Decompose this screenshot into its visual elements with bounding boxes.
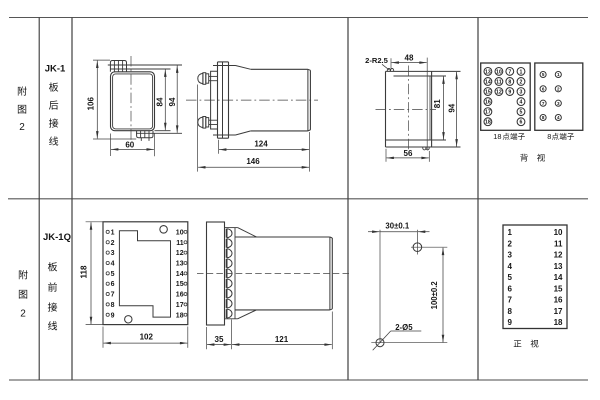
svg-text:2: 2: [19, 122, 25, 133]
svg-text:4: 4: [508, 262, 513, 271]
svg-text:12: 12: [176, 250, 184, 257]
svg-text:8: 8: [111, 302, 115, 309]
svg-text:1: 1: [520, 69, 523, 75]
svg-text:2: 2: [508, 239, 513, 248]
svg-text:JK-1Q: JK-1Q: [43, 232, 71, 243]
svg-text:94: 94: [448, 103, 457, 112]
svg-text:13: 13: [176, 260, 184, 267]
svg-text:5: 5: [542, 72, 545, 77]
svg-text:4: 4: [520, 99, 523, 105]
svg-text:94: 94: [168, 97, 177, 106]
svg-text:3: 3: [508, 251, 513, 260]
svg-text:15: 15: [554, 284, 563, 293]
svg-text:1: 1: [111, 229, 115, 236]
svg-text:10: 10: [176, 229, 184, 236]
svg-text:9: 9: [111, 312, 115, 319]
svg-text:35: 35: [215, 335, 224, 344]
svg-text:8: 8: [547, 132, 551, 141]
svg-text:30±0.1: 30±0.1: [385, 221, 409, 230]
svg-text:7: 7: [508, 69, 511, 75]
svg-text:5: 5: [520, 110, 523, 116]
svg-text:7: 7: [542, 101, 545, 106]
svg-text:3: 3: [111, 250, 115, 257]
svg-text:4: 4: [111, 260, 115, 267]
svg-text:8: 8: [542, 115, 545, 120]
svg-text:48: 48: [405, 53, 414, 62]
svg-text:18: 18: [485, 120, 491, 126]
svg-text:100±0.2: 100±0.2: [430, 281, 439, 310]
svg-text:118: 118: [80, 265, 89, 278]
svg-text:124: 124: [254, 139, 268, 148]
svg-text:2: 2: [557, 87, 560, 92]
svg-text:17: 17: [485, 110, 491, 116]
svg-text:60: 60: [125, 140, 134, 149]
svg-text:5: 5: [111, 271, 115, 278]
svg-text:6: 6: [542, 87, 545, 92]
svg-text:13: 13: [485, 69, 491, 75]
svg-text:121: 121: [275, 335, 289, 344]
svg-text:8: 8: [508, 307, 513, 316]
svg-text:9: 9: [508, 89, 511, 95]
svg-text:11: 11: [496, 79, 502, 85]
svg-text:4: 4: [557, 115, 560, 120]
svg-text:1: 1: [508, 228, 513, 237]
svg-text:106: 106: [86, 96, 95, 110]
svg-text:7: 7: [508, 296, 513, 305]
svg-text:6: 6: [111, 281, 115, 288]
svg-text:6: 6: [520, 120, 523, 126]
svg-text:12: 12: [496, 89, 502, 95]
svg-text:15: 15: [485, 89, 491, 95]
svg-text:10: 10: [554, 228, 563, 237]
svg-text:3: 3: [520, 89, 523, 95]
svg-text:16: 16: [176, 292, 184, 299]
svg-text:1: 1: [557, 72, 560, 77]
svg-text:JK-1: JK-1: [45, 64, 66, 75]
svg-text:146: 146: [246, 157, 260, 166]
svg-text:6: 6: [508, 284, 513, 293]
svg-text:17: 17: [554, 307, 563, 316]
svg-text:81: 81: [433, 99, 442, 108]
svg-text:16: 16: [554, 296, 563, 305]
svg-text:18: 18: [176, 312, 184, 319]
svg-text:18: 18: [554, 318, 563, 327]
svg-text:14: 14: [485, 79, 491, 85]
svg-text:14: 14: [554, 273, 563, 282]
svg-text:2: 2: [111, 240, 115, 247]
svg-text:8: 8: [508, 79, 511, 85]
svg-text:9: 9: [508, 318, 513, 327]
svg-text:2: 2: [20, 308, 26, 319]
svg-text:17: 17: [176, 302, 184, 309]
svg-text:3: 3: [557, 101, 560, 106]
svg-text:11: 11: [554, 239, 563, 248]
svg-text:56: 56: [404, 149, 413, 158]
svg-text:10: 10: [496, 69, 502, 75]
svg-text:18: 18: [493, 132, 501, 141]
svg-text:11: 11: [176, 240, 184, 247]
svg-text:16: 16: [485, 99, 491, 105]
svg-text:84: 84: [155, 97, 164, 106]
svg-text:14: 14: [176, 271, 184, 278]
svg-text:7: 7: [111, 292, 115, 299]
svg-text:2-R2.5: 2-R2.5: [365, 56, 389, 65]
svg-text:102: 102: [140, 333, 154, 342]
svg-text:15: 15: [176, 281, 184, 288]
svg-text:12: 12: [554, 251, 563, 260]
svg-text:2: 2: [520, 79, 523, 85]
svg-text:5: 5: [508, 273, 513, 282]
svg-text:13: 13: [554, 262, 563, 271]
